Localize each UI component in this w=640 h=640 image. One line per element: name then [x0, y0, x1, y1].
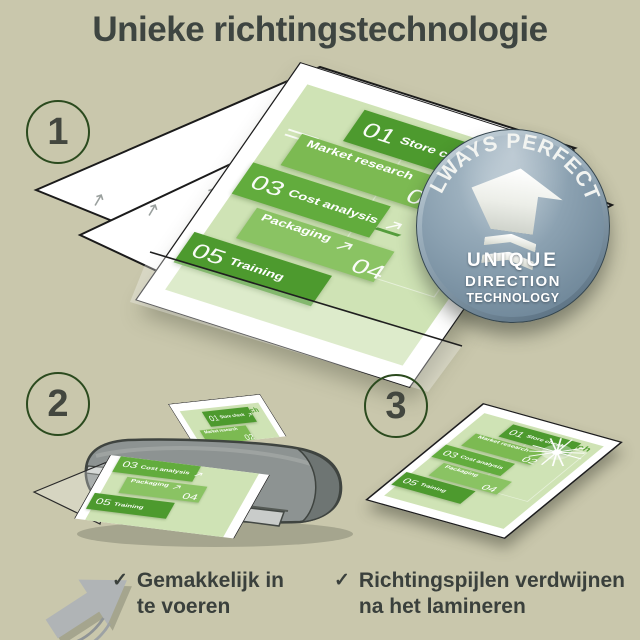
check-icon: ✓: [112, 568, 128, 621]
checklist-line: Gemakkelijk in: [137, 568, 284, 594]
checklist-line: te voeren: [137, 594, 284, 620]
infographic-canvas: Unieke richtingstechnologie 1 Launch01St…: [0, 0, 640, 640]
check-icon: ✓: [334, 568, 350, 621]
checklist-item-easy-feed: ✓ Gemakkelijk in te voeren: [112, 568, 284, 621]
badge-caption: UNIQUE DIRECTION TECHNOLOGY: [417, 249, 609, 307]
checklist-text: Richtingspijlen verdwijnen na het lamine…: [359, 568, 625, 621]
step-2-number: 2: [47, 383, 68, 426]
step-3-badge: 3: [364, 374, 428, 438]
step-1-number: 1: [47, 111, 68, 154]
badge-line-direction: DIRECTION: [417, 273, 609, 292]
checklist-line: na het lamineren: [359, 594, 625, 620]
badge-line-unique: UNIQUE: [417, 249, 609, 273]
checklist-line: Richtingspijlen verdwijnen: [359, 568, 625, 594]
step-3-number: 3: [385, 385, 406, 428]
up-arrow-icon: [466, 162, 566, 238]
checklist-text: Gemakkelijk in te voeren: [137, 568, 284, 621]
step-1-badge: 1: [26, 100, 90, 164]
badge-line-technology: TECHNOLOGY: [417, 291, 609, 307]
checklist-item-arrows-disappear: ✓ Richtingspijlen verdwijnen na het lami…: [334, 568, 625, 621]
always-perfect-badge: ALWAYS PERFECT! UNIQUE DIRECTION TECHNOL…: [416, 129, 610, 323]
step-2-badge: 2: [26, 372, 90, 436]
